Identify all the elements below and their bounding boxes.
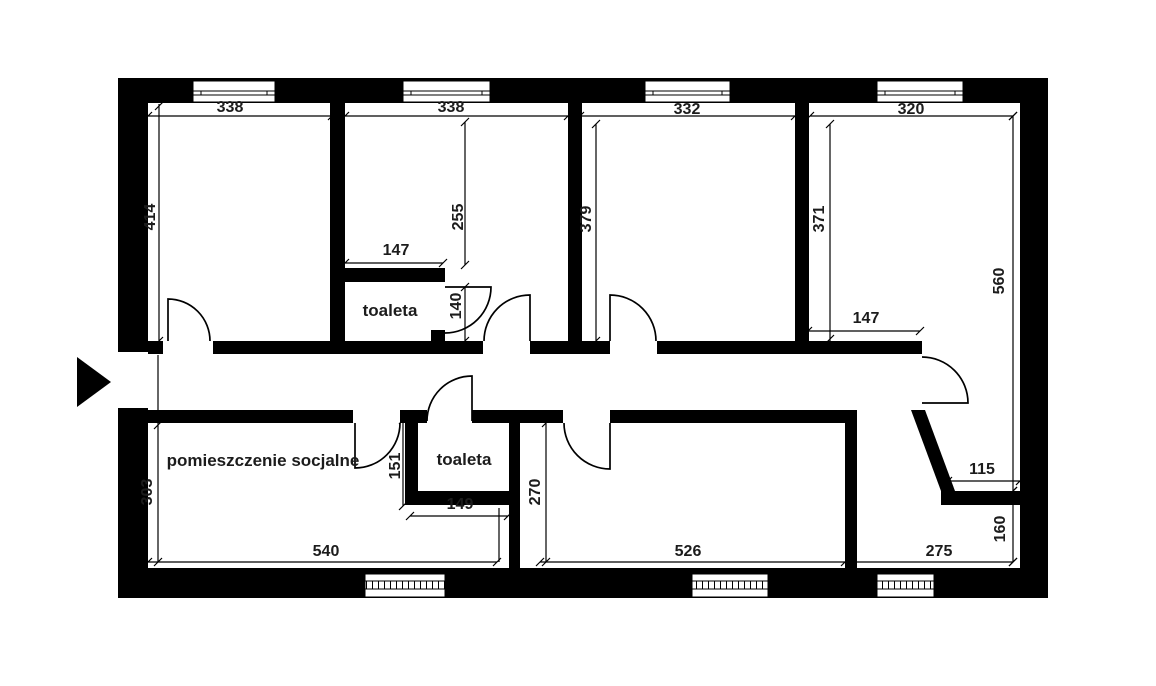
dim-toilet-bottom-width: 149 — [447, 497, 474, 513]
wall-corridor-top-d — [657, 341, 922, 354]
wall-nook-stub — [941, 491, 1020, 505]
dim-social-room-width: 540 — [313, 544, 340, 560]
dimension-lines — [144, 102, 1024, 566]
dimline-social-room-depth — [154, 355, 162, 566]
window-room3 — [645, 81, 730, 102]
dimline-nook-width — [944, 477, 1024, 485]
window-room4 — [877, 81, 963, 102]
door-room2 — [484, 295, 530, 341]
dimline-room4-bottom-width — [804, 327, 924, 335]
dim-room4-depth: 371 — [812, 206, 828, 233]
dim-room4-bottom-width: 147 — [853, 311, 880, 327]
window-social-room — [365, 574, 445, 597]
door-toilet-bottom — [427, 376, 472, 421]
dimline-room2-depth — [461, 118, 469, 269]
room-label-social: pomieszczenie socjalne — [167, 451, 360, 471]
dimline-toilet-top-width — [341, 259, 447, 267]
wall-toilet-top-stub — [431, 330, 445, 343]
wall-toilet-top-north — [345, 268, 445, 282]
wall-corridor-top-c — [530, 341, 610, 354]
wall-outer-right — [1020, 78, 1048, 598]
floor-plan-drawing — [0, 0, 1156, 686]
wall-corridor-top-a — [148, 341, 163, 354]
wall-room1-room2 — [330, 103, 345, 353]
door-room1 — [168, 299, 210, 341]
wall-room3-room4 — [795, 103, 809, 347]
dim-toilet-top-depth: 140 — [449, 293, 465, 320]
dim-toilet-top-width: 147 — [383, 243, 410, 259]
walls — [118, 78, 1048, 598]
dim-bottom-room-width: 526 — [675, 544, 702, 560]
dim-bottom-room-depth: 270 — [528, 479, 544, 506]
dim-room1-width: 338 — [217, 100, 244, 116]
dim-room1-depth: 414 — [143, 204, 159, 231]
window-bottom-right — [877, 574, 934, 597]
dim-room3-width: 332 — [674, 102, 701, 118]
door-room526 — [564, 423, 610, 469]
dim-room2-width: 338 — [438, 100, 465, 116]
dim-nook-depth: 160 — [993, 516, 1009, 543]
wall-corridor-bottom-a — [148, 410, 353, 423]
dim-room3-depth: 379 — [579, 206, 595, 233]
dim-social-room-depth: 303 — [140, 479, 156, 506]
floor-plan: 338 338 332 320 414 255 379 371 560 147 … — [0, 0, 1156, 686]
room-label-toilet-bottom: toaleta — [437, 450, 492, 470]
entrance-arrow-icon — [77, 357, 111, 407]
wall-room526-east — [845, 410, 857, 568]
wall-toilet-bottom-west — [405, 410, 418, 505]
dim-room2-depth: 255 — [451, 204, 467, 231]
window-room526 — [692, 574, 768, 597]
dim-room4-width: 320 — [898, 102, 925, 118]
dim-right-room-depth: 560 — [992, 268, 1008, 295]
wall-corridor-bottom-d — [610, 410, 857, 423]
dim-toilet-bottom-depth: 151 — [388, 453, 404, 480]
door-corridor-end — [922, 357, 968, 403]
room-label-toilet-top: toaleta — [363, 301, 418, 321]
dimline-right-room-depth — [1009, 112, 1017, 495]
dim-nook-width: 115 — [969, 462, 995, 478]
door-room3 — [610, 295, 656, 341]
dimline-toilet-bottom-width — [406, 508, 512, 562]
wall-diagonal — [911, 410, 955, 491]
dimline-room3-depth — [592, 120, 600, 345]
wall-toilet-bottom-east — [509, 410, 520, 568]
dim-bottom-right-width: 275 — [926, 544, 953, 560]
